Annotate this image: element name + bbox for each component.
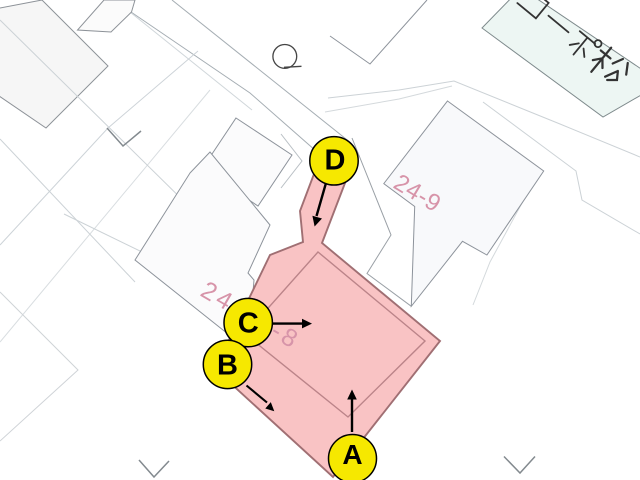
svg-text:B: B <box>217 350 238 382</box>
svg-text:D: D <box>325 145 346 177</box>
svg-text:A: A <box>342 439 362 470</box>
svg-text:C: C <box>238 308 259 340</box>
